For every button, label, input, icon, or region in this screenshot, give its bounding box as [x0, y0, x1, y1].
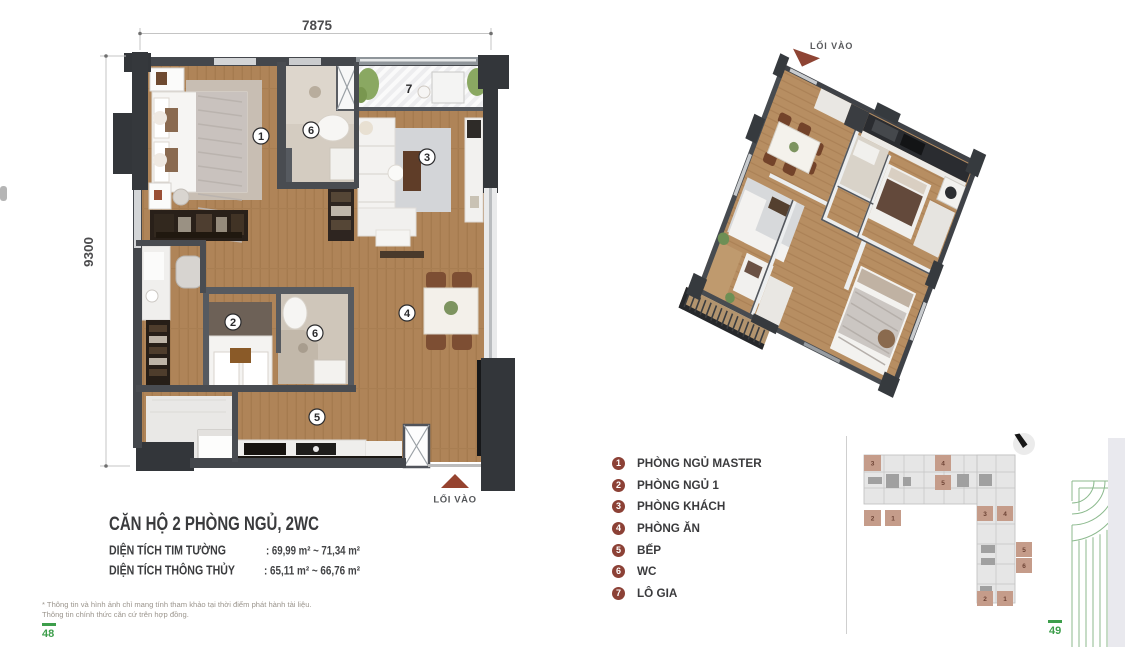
svg-text:4: 4	[1003, 511, 1007, 518]
svg-text:6: 6	[308, 125, 314, 137]
svg-text:9300: 9300	[81, 237, 96, 267]
svg-text:1: 1	[1003, 596, 1007, 603]
svg-text:1: 1	[258, 131, 264, 143]
svg-text:6: 6	[1022, 563, 1026, 570]
svg-text:2: 2	[230, 317, 236, 329]
svg-text:: 65,11 m² ~ 66,76 m²: : 65,11 m² ~ 66,76 m²	[264, 564, 360, 578]
svg-text:5: 5	[941, 480, 945, 487]
svg-text:3: 3	[871, 461, 875, 468]
svg-text:: 69,99 m² ~ 71,34 m²: : 69,99 m² ~ 71,34 m²	[266, 544, 360, 558]
svg-text:4: 4	[941, 461, 945, 468]
svg-text:DIỆN TÍCH TIM TƯỜNG: DIỆN TÍCH TIM TƯỜNG	[109, 543, 226, 558]
svg-text:LỐI VÀO: LỐI VÀO	[810, 40, 853, 51]
svg-text:2: 2	[871, 516, 875, 523]
svg-text:DIỆN TÍCH THÔNG THỦY: DIỆN TÍCH THÔNG THỦY	[109, 563, 235, 578]
svg-text:1: 1	[891, 516, 895, 523]
svg-text:3: 3	[424, 152, 430, 164]
svg-text:5: 5	[1022, 547, 1026, 554]
svg-text:3: 3	[983, 511, 987, 518]
svg-text:5: 5	[314, 412, 320, 424]
svg-text:2: 2	[983, 596, 987, 603]
svg-text:7875: 7875	[302, 18, 332, 33]
svg-text:LỐI VÀO: LỐI VÀO	[433, 494, 476, 506]
svg-text:CĂN HỘ 2 PHÒNG NGỦ, 2WC: CĂN HỘ 2 PHÒNG NGỦ, 2WC	[109, 511, 319, 535]
svg-text:6: 6	[312, 328, 318, 340]
svg-text:7: 7	[406, 82, 413, 96]
svg-text:4: 4	[404, 308, 411, 320]
